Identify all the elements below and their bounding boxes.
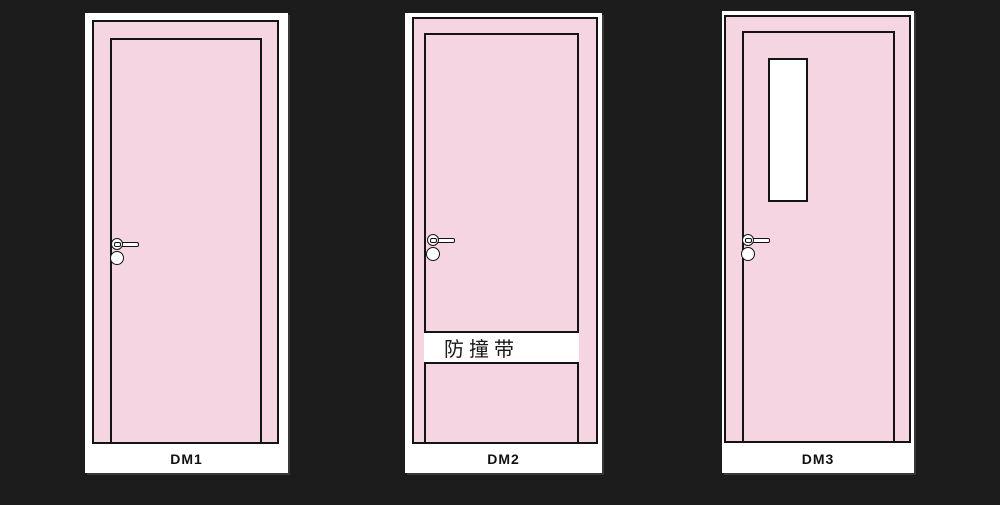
anti-collision-band-label: 防撞带 [424, 333, 519, 362]
door-handle-icon [427, 234, 467, 266]
lock-knob-icon [741, 247, 755, 261]
vision-panel-window [768, 58, 808, 202]
door-elevation-drawing: DM1 防撞带 DM2 DM3 [0, 0, 1000, 505]
handle-rose-icon [742, 234, 754, 246]
door-label-strip: DM2 [405, 444, 602, 473]
door-handle-icon [111, 238, 151, 270]
lock-knob-icon [110, 251, 124, 265]
handle-rose-icon [111, 238, 123, 250]
door-label-strip: DM1 [85, 444, 288, 473]
door-unit-dm1: DM1 [85, 13, 288, 473]
door-label: DM2 [487, 451, 520, 467]
anti-collision-band: 防撞带 [424, 331, 579, 364]
door-label-strip: DM3 [722, 444, 914, 473]
door-unit-dm3: DM3 [722, 11, 914, 473]
door-handle-icon [742, 234, 782, 266]
door-label: DM3 [802, 451, 835, 467]
handle-rose-icon [427, 234, 439, 246]
door-unit-dm2: 防撞带 DM2 [405, 13, 602, 473]
door-label: DM1 [170, 451, 203, 467]
lock-knob-icon [426, 247, 440, 261]
